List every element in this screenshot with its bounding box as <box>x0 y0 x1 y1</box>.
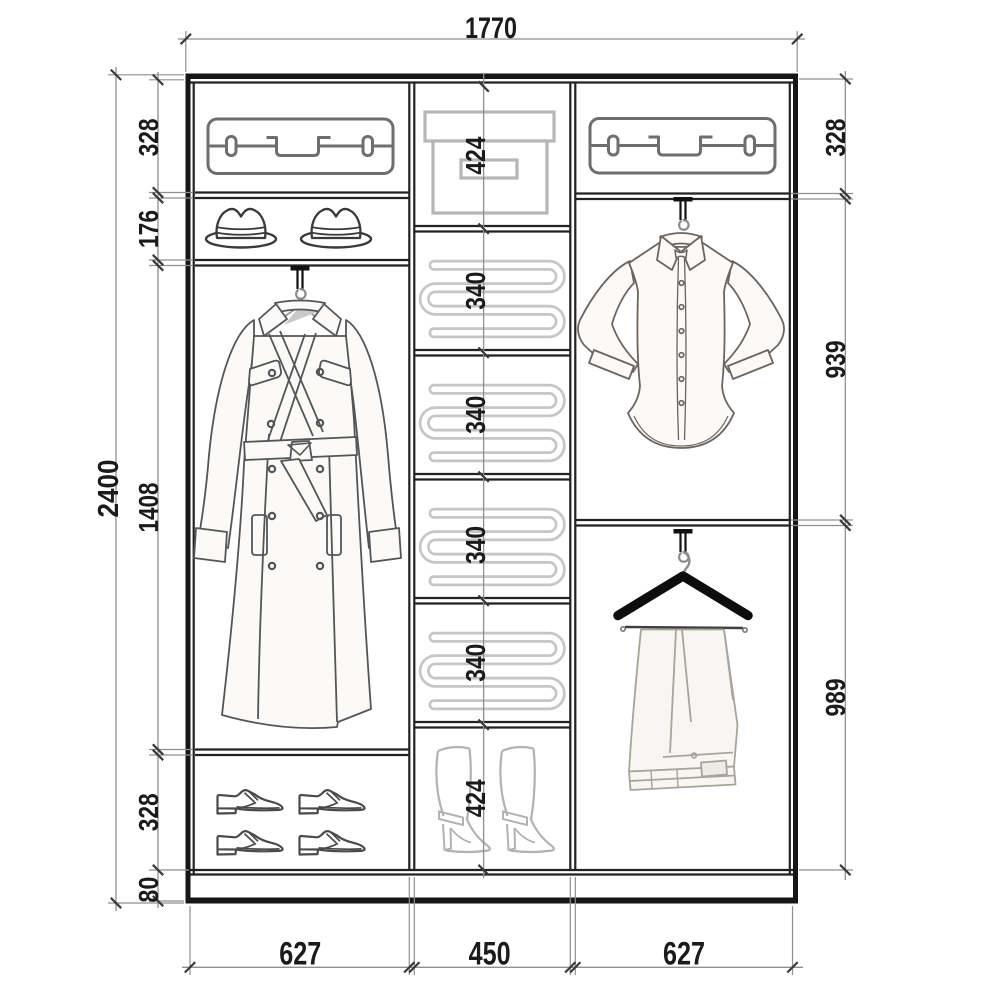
svg-text:176: 176 <box>133 210 164 248</box>
svg-text:939: 939 <box>820 341 851 379</box>
svg-text:340: 340 <box>460 396 491 434</box>
svg-text:1408: 1408 <box>133 483 164 533</box>
svg-text:1770: 1770 <box>465 12 517 45</box>
svg-text:627: 627 <box>663 936 705 972</box>
svg-text:340: 340 <box>460 272 491 310</box>
svg-text:2400: 2400 <box>93 460 125 518</box>
svg-text:424: 424 <box>460 779 491 817</box>
svg-text:424: 424 <box>460 136 491 174</box>
svg-text:340: 340 <box>460 644 491 682</box>
svg-text:989: 989 <box>820 679 851 717</box>
svg-text:450: 450 <box>469 936 511 972</box>
svg-text:340: 340 <box>460 526 491 564</box>
svg-text:627: 627 <box>279 936 321 972</box>
svg-text:80: 80 <box>133 877 164 903</box>
svg-text:328: 328 <box>133 793 164 831</box>
svg-text:328: 328 <box>820 119 851 157</box>
svg-text:328: 328 <box>133 118 164 156</box>
